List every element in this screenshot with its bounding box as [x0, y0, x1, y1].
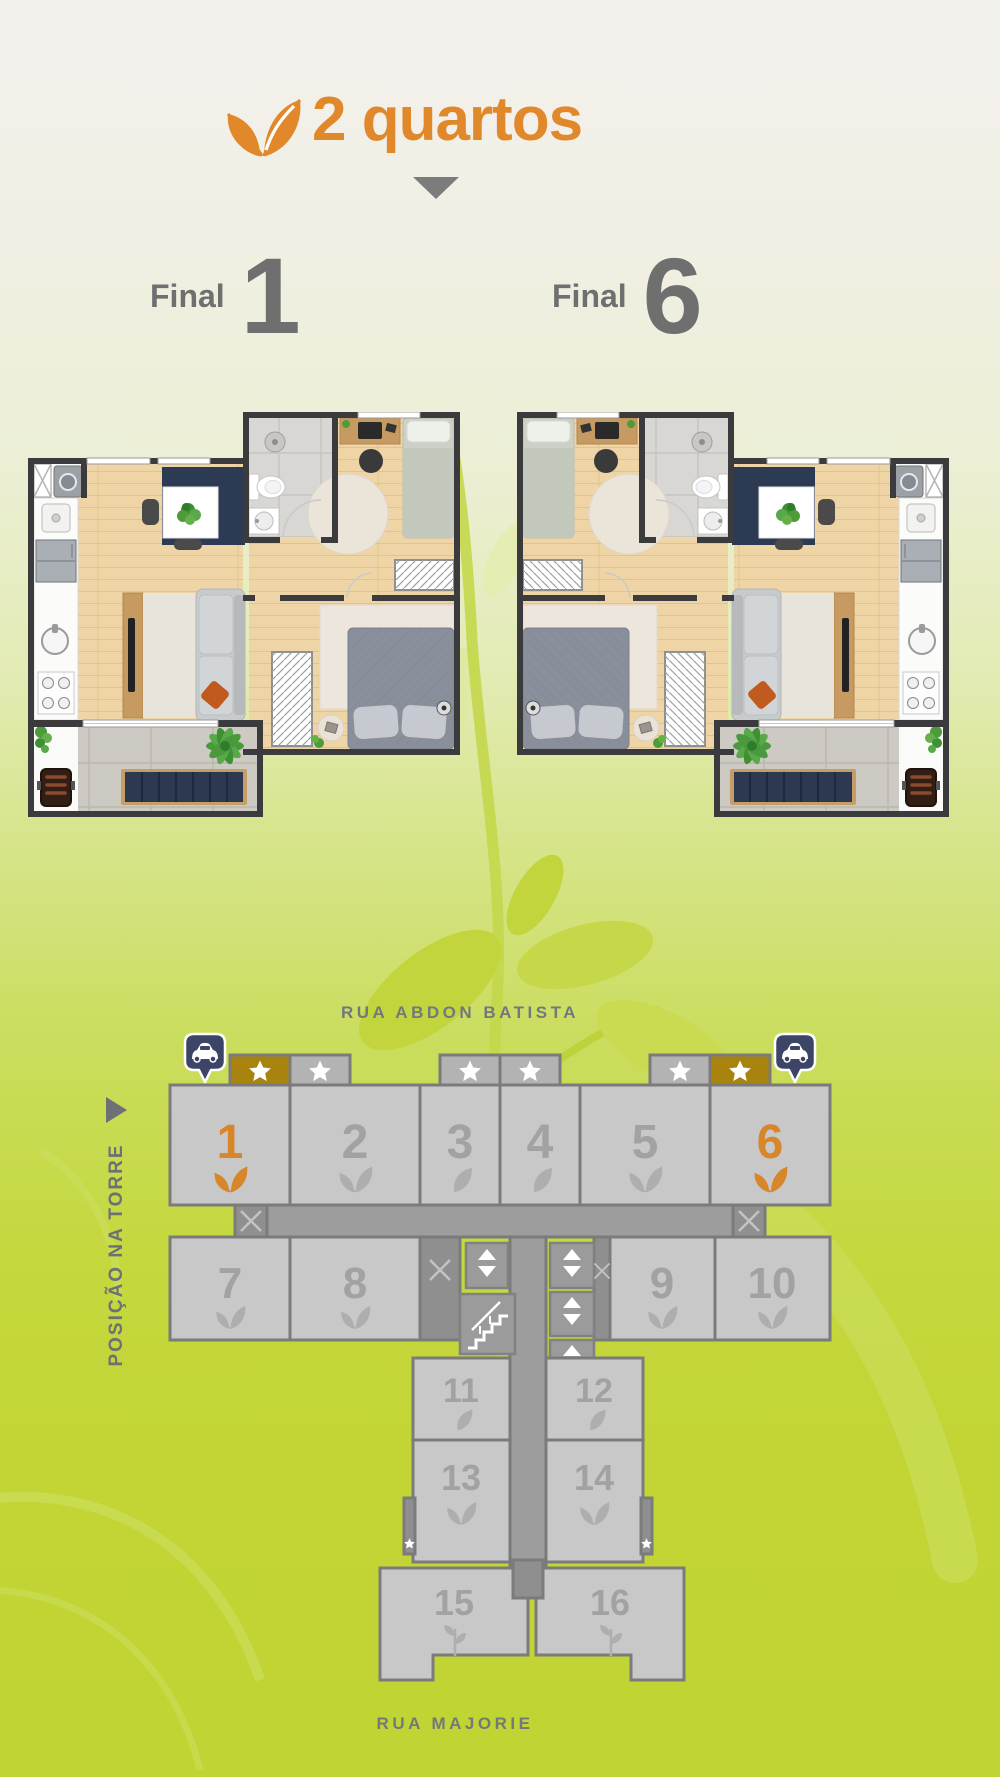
unit-number: 7 — [218, 1259, 242, 1308]
unit-number: 8 — [343, 1259, 367, 1308]
unit-number: 11 — [443, 1372, 479, 1410]
unit-number: 12 — [575, 1372, 613, 1410]
unit-number: 6 — [757, 1116, 784, 1169]
unit-number: 10 — [748, 1259, 797, 1308]
final-1-label: Final 1 — [150, 240, 301, 352]
unit-number: 5 — [632, 1116, 659, 1169]
page-title: 2 quartos — [312, 84, 582, 155]
stairs-icon — [460, 1294, 515, 1354]
corridor-connector — [513, 1560, 543, 1598]
unit-number: 4 — [527, 1116, 554, 1169]
final-number-1: 1 — [241, 242, 301, 350]
street-label-top: RUA ABDON BATISTA — [150, 1003, 770, 1023]
final-number-6: 6 — [643, 242, 703, 350]
car-icon-left — [185, 1034, 225, 1082]
car-icon-right — [775, 1034, 815, 1082]
unit-number: 1 — [217, 1116, 244, 1169]
header-leaf-icon — [222, 92, 302, 164]
unit-number: 16 — [590, 1582, 630, 1623]
unit-number: 15 — [434, 1582, 474, 1623]
tower-diagram: 1 2 3 4 5 6 7 8 9 10 11 12 13 14 15 16 — [60, 1030, 940, 1730]
unit-number: 13 — [441, 1457, 481, 1498]
unit-number: 3 — [447, 1116, 474, 1169]
corridor — [235, 1205, 765, 1237]
floorplan-final-1 — [28, 412, 460, 817]
final-word: Final — [552, 278, 627, 315]
page: 2 quartos Final 1 Final 6 RUA ABDON BATI… — [0, 0, 1000, 1777]
final-6-label: Final 6 — [552, 240, 703, 352]
corridor-vertical — [510, 1237, 546, 1582]
unit-number: 2 — [342, 1116, 369, 1169]
unit-number: 9 — [650, 1259, 674, 1308]
floorplan-final-6 — [517, 412, 949, 817]
street-label-bottom: RUA MAJORIE — [145, 1714, 765, 1734]
final-word: Final — [150, 278, 225, 315]
unit-number: 14 — [574, 1457, 614, 1498]
chevron-down-icon — [413, 177, 459, 199]
